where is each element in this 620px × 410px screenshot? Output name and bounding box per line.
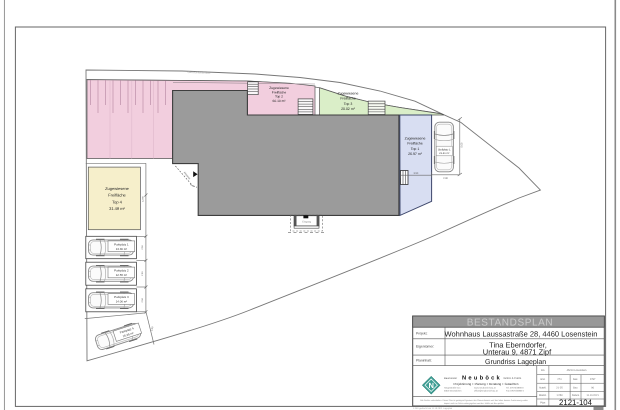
svg-text:Hauptstraße 51a: Hauptstraße 51a (444, 387, 461, 390)
svg-text:Eingang: Eingang (302, 221, 311, 224)
svg-text:GmbH & CoKG: GmbH & CoKG (504, 377, 522, 380)
svg-text:Tel. 07673/4998-0: Tel. 07673/4998-0 (506, 387, 524, 390)
svg-text:21-25: 21-25 (556, 386, 563, 389)
svg-text:Plan: Plan (540, 402, 546, 405)
svg-text:3.50: 3.50 (413, 172, 418, 175)
svg-text:office@neuboeck-bau.at: office@neuboeck-bau.at (474, 390, 498, 393)
svg-text:www.neuboeck-bau.at: www.neuboeck-bau.at (474, 387, 496, 390)
svg-text:21.41 m²: 21.41 m² (439, 152, 449, 155)
svg-text:Freifläche: Freifläche (108, 193, 126, 198)
svg-text:11.10.2021: 11.10.2021 (586, 394, 599, 397)
svg-text:Zugewiesene: Zugewiesene (338, 92, 359, 96)
svg-text:Gemeindestraße: Gemeindestraße (187, 70, 210, 75)
svg-text:KG: KG (541, 369, 545, 372)
svg-text:Parkplatz 1: Parkplatz 1 (114, 242, 129, 246)
svg-text:Nek.: Nek. (573, 378, 578, 381)
svg-text:4863 Seewalchen: 4863 Seewalchen (444, 390, 462, 393)
svg-text:kopiert noch an Dritte weiterg: kopiert noch an Dritte weitergegeben wer… (444, 402, 505, 405)
svg-text:2121-104: 2121-104 (559, 398, 593, 407)
svg-text:Eigentümer:: Eigentümer: (416, 345, 434, 349)
svg-text:Projektierung + Planung +: Projektierung + Planung + Beratung + Gut… (454, 382, 519, 386)
svg-text:5.00: 5.00 (461, 142, 464, 147)
svg-text:2.30: 2.30 (443, 177, 448, 180)
svg-text:Freifläche: Freifläche (340, 97, 355, 101)
svg-text:Fax 07673/4998-4: Fax 07673/4998-4 (506, 390, 525, 393)
svg-text:Neuböck: Neuböck (462, 375, 502, 382)
svg-text:2787: 2787 (590, 378, 596, 381)
svg-text:20.02 m²: 20.02 m² (341, 107, 356, 111)
svg-text:Nutzfl.: Nutzfl. (539, 386, 546, 389)
svg-text:Top 3: Top 3 (344, 102, 353, 106)
svg-text:13.36 m²: 13.36 m² (116, 247, 127, 251)
svg-text:Grundriss Lageplan: Grundriss Lageplan (485, 358, 546, 366)
svg-text:Parkplatz 3: Parkplatz 3 (114, 295, 129, 299)
svg-text:1:250: 1:250 (556, 394, 563, 397)
svg-text:Planinhalt:: Planinhalt: (416, 359, 432, 363)
svg-text:274: 274 (557, 378, 562, 381)
svg-text:14.06 m²: 14.06 m² (116, 300, 127, 304)
svg-text:45213 Losenstein: 45213 Losenstein (567, 369, 587, 372)
svg-text:Top 4: Top 4 (112, 199, 123, 204)
svg-text:Baumeister: Baumeister (444, 377, 457, 380)
svg-text:Zugewiesene: Zugewiesene (405, 137, 426, 141)
svg-text:12.55 m²: 12.55 m² (116, 273, 127, 277)
svg-text:12.55: 12.55 (141, 195, 144, 201)
svg-text:Maßst.: Maßst. (539, 394, 547, 397)
svg-text:Projekt:: Projekt: (416, 331, 428, 335)
svg-text:31.49 m²: 31.49 m² (109, 206, 125, 211)
svg-text:Wohnhaus Laussastraße 28, 4460: Wohnhaus Laussastraße 28, 4460 Losenstei… (445, 330, 598, 339)
svg-text:Datum: Datum (572, 394, 579, 397)
svg-text:60.10 m²: 60.10 m² (272, 99, 286, 103)
svg-text:Zugewiesene: Zugewiesene (105, 186, 130, 191)
svg-text:Gez.: Gez. (573, 386, 579, 389)
svg-text:N: N (428, 381, 433, 390)
svg-text:Alle Rechte vorbehalten. Diese: Alle Rechte vorbehalten. Dieser Plan ist… (420, 399, 528, 402)
svg-text:Unterau 9, 4871 Zipf: Unterau 9, 4871 Zipf (483, 348, 552, 357)
svg-text:Freifläche: Freifläche (407, 142, 422, 146)
svg-text:GSt.: GSt. (540, 378, 545, 381)
svg-text:26.97 m²: 26.97 m² (408, 152, 423, 156)
svg-text:Stellplatz 1: Stellplatz 1 (438, 148, 451, 151)
svg-text:Top 1: Top 1 (411, 147, 420, 151)
svg-text:BESTANDSPLAN: BESTANDSPLAN (467, 317, 553, 328)
svg-text:Parkplatz 2: Parkplatz 2 (114, 269, 129, 273)
